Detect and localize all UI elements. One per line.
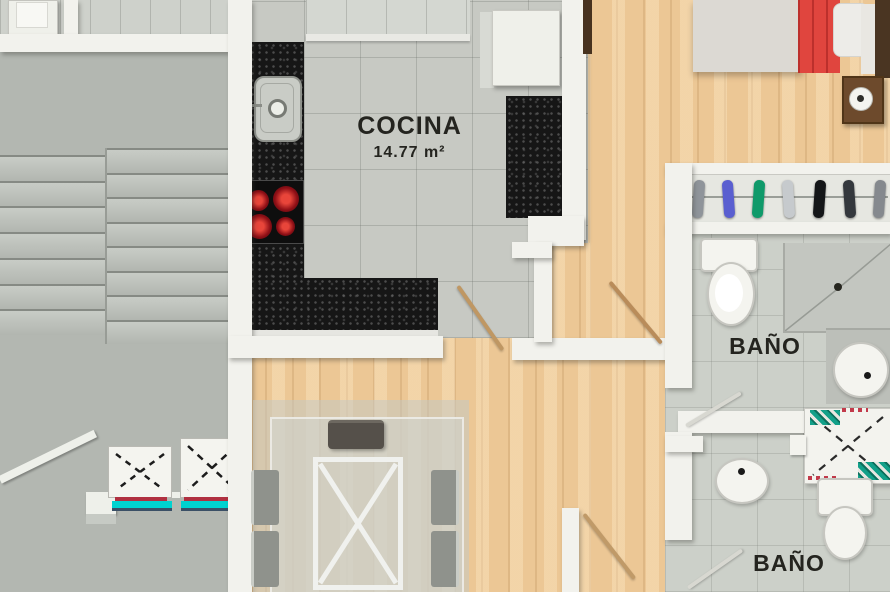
hall-wood-patch (552, 243, 590, 338)
wall-stairwell-kitchen (228, 0, 252, 592)
stair-step (106, 271, 228, 296)
kitchen-window-sill (306, 34, 470, 41)
dining-chair-left-2 (251, 531, 279, 587)
wall-bath-divider (678, 411, 810, 433)
wall-bath-column-upper (665, 163, 692, 388)
shower-drain (834, 283, 842, 291)
kitchen-label: COCINA (332, 112, 487, 141)
stair-step (106, 222, 228, 247)
kitchen-window-strip (306, 0, 470, 34)
clothes-item (782, 180, 796, 219)
elevator-platform-step (86, 514, 116, 524)
duct-red-ticks-top (842, 408, 868, 412)
wall-kitchen-bottom-west (228, 336, 443, 358)
stair-step (106, 173, 228, 198)
fridge (492, 10, 560, 86)
toilet-1-bowl-inner (715, 274, 743, 312)
dining-chair-left-1 (251, 470, 279, 525)
bath1-label: BAÑO (700, 333, 830, 360)
floor-plan: COCINA 14.77 m² cl BAÑO (0, 0, 890, 592)
stair-step (0, 258, 106, 284)
bed-frame-edge (861, 4, 875, 74)
bath2-sink (715, 458, 769, 504)
stair-step (106, 148, 228, 173)
stair-flight-right (106, 148, 228, 344)
stair-step (106, 320, 228, 345)
stair-step (0, 155, 106, 181)
stair-flight-left (0, 155, 106, 335)
stair-step (106, 295, 228, 320)
clothes-item (722, 180, 736, 219)
elevator-1-door-cyan (112, 501, 172, 511)
kitchen-counter-right (506, 96, 564, 218)
kitchen-area-label: 14.77 m² (332, 144, 487, 162)
dining-chair-right-1 (431, 470, 459, 525)
bed-mattress (693, 0, 803, 72)
clothes-item (873, 180, 887, 219)
duct-tab (790, 435, 806, 455)
stair-step (0, 284, 106, 310)
wall-stairwell-top (0, 34, 228, 52)
elevator-1-x-mark (109, 447, 171, 497)
nightstand-lamp-center (857, 95, 864, 102)
bedroom-headboard-wall (875, 0, 890, 78)
clothes-item (842, 180, 856, 219)
stove-burner-2 (273, 186, 299, 212)
stove-burner-4 (276, 217, 295, 236)
stair-flight-seam (105, 148, 107, 344)
closet-clothes (690, 177, 888, 221)
door-leaf-hall-lower (562, 508, 579, 592)
duct-hatch-top (810, 410, 840, 425)
clothes-item (752, 180, 766, 219)
wall-top-left-divider (64, 0, 78, 38)
stair-step (106, 246, 228, 271)
table-x-frame (318, 462, 398, 585)
stair-step (106, 197, 228, 222)
clothes-item (812, 180, 826, 219)
closet-bottom-shelf (665, 222, 890, 234)
kitchen-counter-bottom (242, 278, 438, 332)
stair-step (0, 309, 106, 335)
dining-chair-top (328, 420, 384, 449)
dining-table-runner (313, 457, 403, 590)
door-leaf-top (583, 0, 592, 54)
bath2-sink-faucet (738, 468, 745, 475)
stair-step (0, 232, 106, 258)
top-left-furniture-cushion (16, 2, 48, 28)
kitchen-faucet (268, 99, 287, 118)
stair-step (0, 181, 106, 207)
wall-bath2-cap (665, 436, 703, 452)
closet-top-wall (665, 163, 890, 174)
wall-kitchen-entry-cap (512, 242, 552, 258)
bath2-label: BAÑO (724, 550, 854, 577)
elevator-shaft-1 (108, 446, 172, 498)
vanity-1-faucet (864, 372, 871, 379)
stair-step (0, 206, 106, 232)
dining-chair-right-2 (431, 531, 459, 587)
vanity-1-sink (833, 342, 889, 398)
